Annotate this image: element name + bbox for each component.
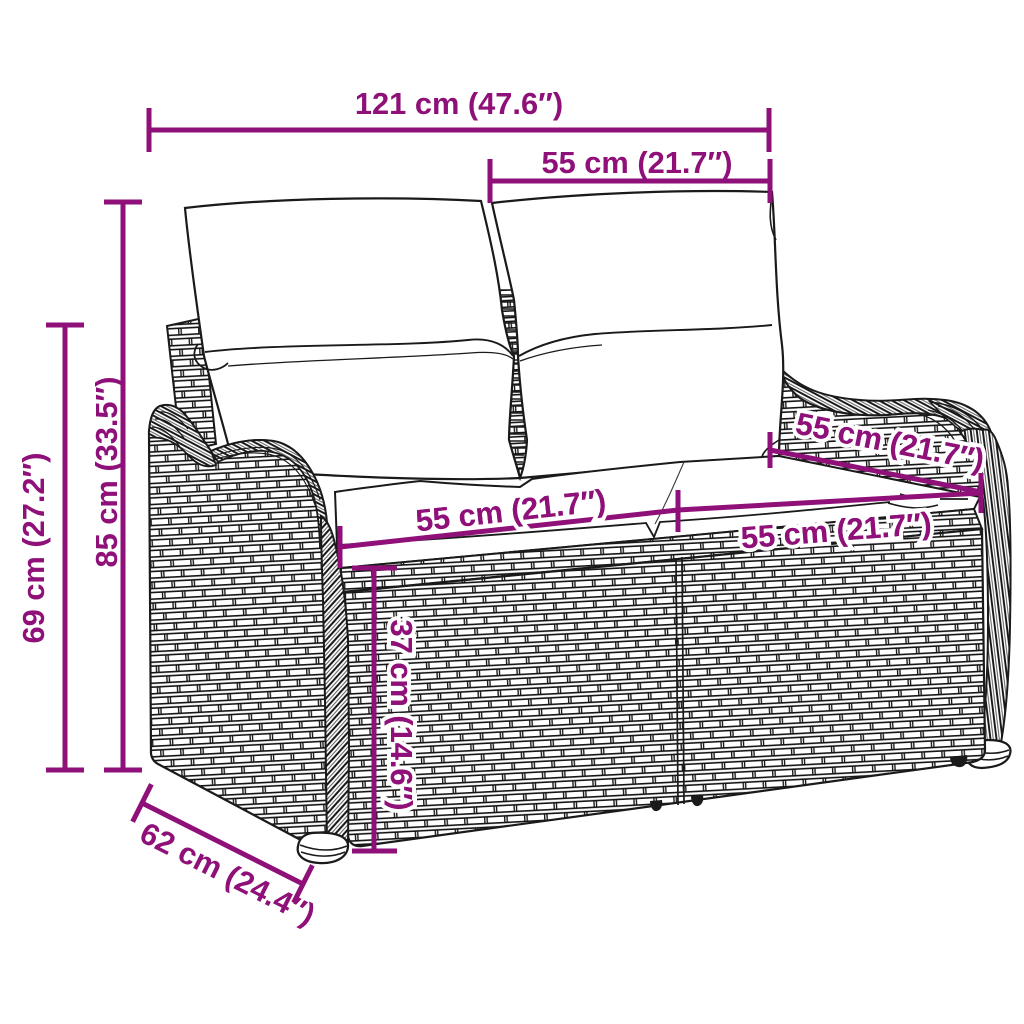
svg-text:121 cm (47.6″): 121 cm (47.6″) bbox=[355, 86, 563, 121]
svg-text:37 cm (14.6″): 37 cm (14.6″) bbox=[384, 619, 419, 810]
svg-text:85 cm (33.5″): 85 cm (33.5″) bbox=[89, 376, 124, 567]
svg-text:69 cm (27.2″): 69 cm (27.2″) bbox=[16, 452, 51, 643]
svg-text:55 cm (21.7″): 55 cm (21.7″) bbox=[541, 145, 732, 180]
